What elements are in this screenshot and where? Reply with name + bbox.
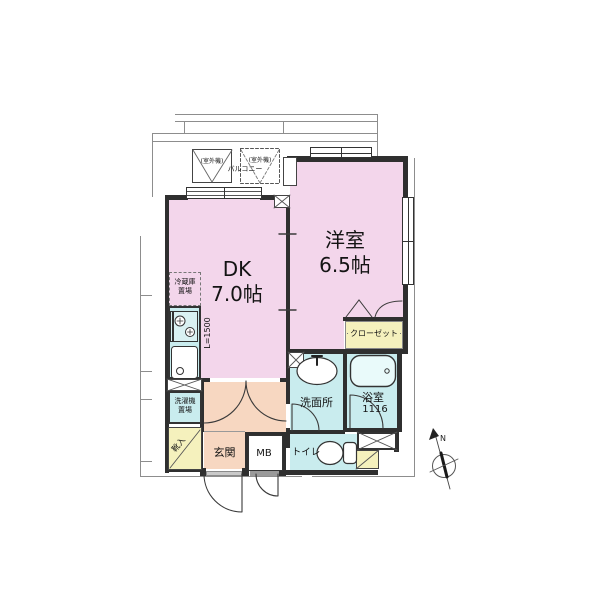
pillar-hatch bbox=[167, 379, 202, 391]
meter-box-label: MB bbox=[245, 448, 283, 461]
western-room-size: 6.5帖 bbox=[319, 253, 371, 277]
outdoor-unit-label: (室外機) bbox=[194, 158, 230, 166]
bathroom-label: 浴室 bbox=[350, 391, 396, 405]
bathroom-size-label: 1116 bbox=[352, 404, 398, 417]
washer-line2: 置場 bbox=[168, 406, 202, 415]
washer-space-label: 洗濯機 置場 bbox=[168, 397, 202, 415]
fridge-line2: 置場 bbox=[169, 287, 201, 296]
balcony-label: バルコニー bbox=[222, 165, 268, 174]
closet-label-row: クローゼット bbox=[347, 328, 401, 339]
floor-plan: N 洋室 6.5帖 DK 7.0帖 玄関 MB トイレ 洗面所 浴室 1116 … bbox=[0, 0, 616, 606]
outdoor-unit-label: (室外機) bbox=[242, 157, 278, 165]
closet-door-fold bbox=[346, 300, 372, 317]
pipe-space-hatch bbox=[357, 432, 397, 450]
north-arrowhead bbox=[429, 428, 439, 440]
closet-dash bbox=[400, 333, 401, 334]
closet-label: クローゼット bbox=[350, 328, 398, 339]
entrance-label: 玄関 bbox=[204, 446, 245, 460]
mb-door-arc bbox=[256, 474, 278, 496]
balcony-pillar bbox=[284, 158, 297, 186]
fridge-space-label: 冷蔵庫 置場 bbox=[169, 278, 201, 296]
hall-door-arc bbox=[204, 381, 246, 423]
kitchen-sink-icon bbox=[172, 347, 198, 379]
western-room-label: 洋室 6.5帖 bbox=[295, 228, 395, 278]
hall-door-arc bbox=[246, 381, 286, 421]
toilet-label: トイレ bbox=[289, 447, 323, 459]
washroom-label: 洗面所 bbox=[290, 396, 343, 410]
dk-label: DK 7.0帖 bbox=[188, 257, 286, 307]
washer-line1: 洗濯機 bbox=[168, 397, 202, 406]
pipe-space-diagonal bbox=[356, 450, 379, 469]
entrance-door-arc bbox=[204, 474, 242, 512]
closet-door-arc bbox=[375, 301, 402, 317]
pillar-hatch bbox=[274, 195, 290, 208]
stove-icon bbox=[171, 312, 198, 342]
compass: N bbox=[429, 428, 458, 489]
dk-size: 7.0帖 bbox=[211, 282, 263, 306]
dk-name: DK bbox=[223, 257, 252, 281]
floorplan-linework: N bbox=[0, 0, 616, 606]
north-label: N bbox=[440, 434, 446, 443]
western-room-name: 洋室 bbox=[325, 228, 365, 252]
toilet-tank bbox=[344, 443, 357, 464]
closet-dash bbox=[347, 333, 348, 334]
kitchen-length-label: L=1500 bbox=[203, 311, 213, 355]
fridge-line1: 冷蔵庫 bbox=[169, 278, 201, 287]
